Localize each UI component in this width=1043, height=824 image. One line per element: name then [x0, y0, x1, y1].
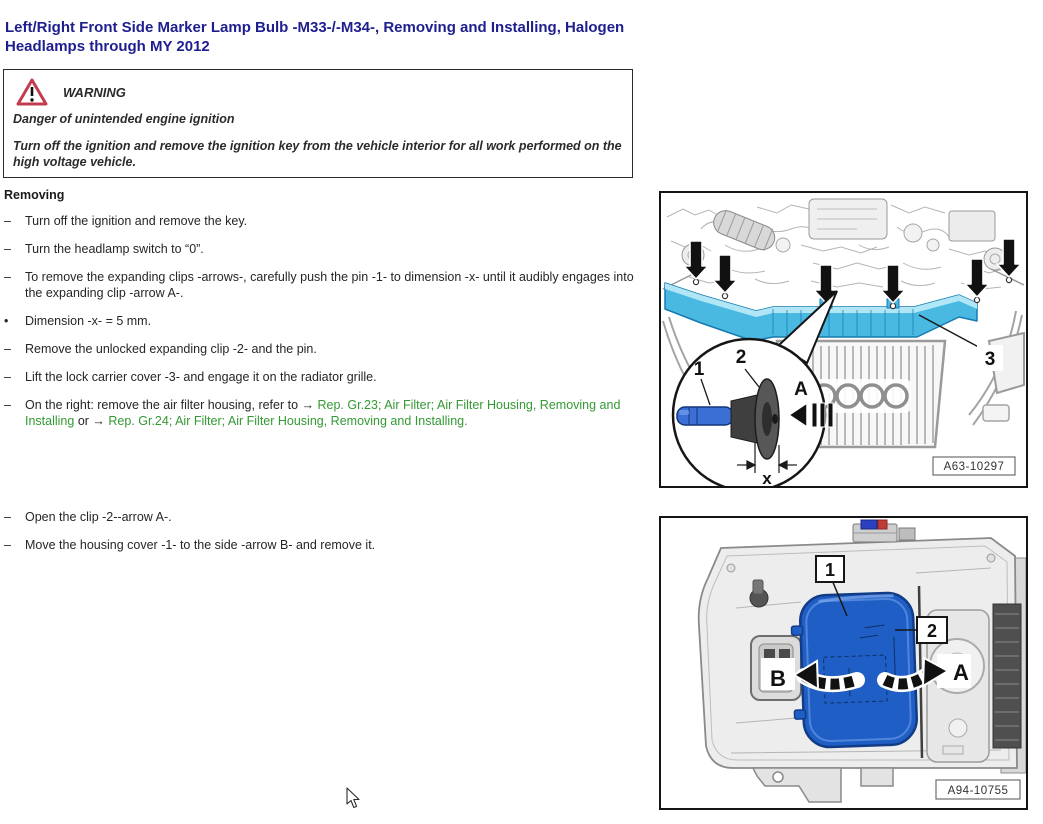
step-text: Lift the lock carrier cover -3- and enga…: [25, 369, 656, 385]
engine-bay-illustration: 3 1 2 A x A63-10297: [661, 193, 1026, 486]
step-text: Remove the unlocked expanding clip -2- a…: [25, 341, 656, 357]
service-manual-page: { "page": { "title": "Left/Right Front S…: [0, 0, 1043, 824]
step-bullet: –: [4, 241, 25, 257]
step-text: Open the clip -2--arrow A-.: [25, 509, 656, 525]
step-text: Turn the headlamp switch to “0”.: [25, 241, 656, 257]
step-bullet: –: [4, 509, 25, 525]
step-bullet: –: [4, 213, 25, 229]
figure-ref-label: A63-10297: [944, 461, 1005, 473]
blue-pin: [677, 407, 733, 425]
step-text-segment: Move the housing cover -1- to the side -…: [25, 538, 375, 552]
step-text-segment: Remove the unlocked expanding clip -2- a…: [25, 342, 317, 356]
page-title: Left/Right Front Side Marker Lamp Bulb -…: [5, 18, 653, 56]
step-text: To remove the expanding clips -arrows-, …: [25, 269, 656, 301]
removal-step: –Move the housing cover -1- to the side …: [4, 537, 656, 553]
step-bullet: –: [4, 537, 25, 553]
step-text-segment: Dimension -x- = 5 mm.: [25, 314, 151, 328]
step-bullet: –: [4, 269, 25, 301]
step-text-segment: Turn the headlamp switch to “0”.: [25, 242, 204, 256]
step-text-segment: Turn off the ignition and remove the key…: [25, 214, 247, 228]
warning-heading: WARNING: [63, 85, 126, 100]
headlamp-illustration: 1 2 B A A94-10755: [661, 518, 1026, 808]
step-text: On the right: remove the air filter hous…: [25, 397, 656, 429]
figure-headlamp-housing: 1 2 B A A94-10755: [659, 516, 1028, 810]
step-text-segment: To remove the expanding clips -arrows-, …: [25, 270, 634, 300]
warning-triangle-icon: [16, 78, 48, 107]
step-text-segment: Lift the lock carrier cover -3- and enga…: [25, 370, 377, 384]
arrow-b-label: B: [770, 666, 786, 691]
step-text: Move the housing cover -1- to the side -…: [25, 537, 656, 553]
step-text: Dimension -x- = 5 mm.: [25, 313, 656, 329]
warning-subtitle: Danger of unintended engine ignition: [13, 112, 625, 126]
removal-step: –Lift the lock carrier cover -3- and eng…: [4, 369, 656, 385]
callout-1-label: 1: [694, 359, 705, 380]
clip-collar: [731, 395, 757, 443]
mounting-bracket: [753, 768, 893, 802]
top-connector: [853, 520, 915, 542]
arrow-a-label: A: [953, 660, 969, 685]
down-arrow-icon: [881, 265, 905, 303]
callout-3-label: 3: [985, 349, 996, 370]
arrow-a-label: A: [794, 379, 808, 400]
warning-box: WARNING Danger of unintended engine igni…: [3, 69, 633, 178]
removal-step: –Turn the headlamp switch to “0”.: [4, 241, 656, 257]
removal-step: –Open the clip -2--arrow A-.: [4, 509, 656, 525]
engine-components: [663, 199, 1024, 289]
removal-step: –To remove the expanding clips -arrows-,…: [4, 269, 656, 301]
removing-steps-group-1: –Turn off the ignition and remove the ke…: [4, 213, 656, 441]
step-bullet: –: [4, 397, 25, 429]
removing-heading: Removing: [4, 188, 64, 202]
step-text-segment: On the right: remove the air filter hous…: [25, 398, 318, 412]
callout-2-label: 2: [736, 347, 747, 368]
removal-step: –Turn off the ignition and remove the ke…: [4, 213, 656, 229]
step-bullet: –: [4, 341, 25, 357]
mouse-cursor: [346, 787, 362, 809]
step-bullet: •: [4, 313, 25, 329]
removal-step: •Dimension -x- = 5 mm.: [4, 313, 656, 329]
step-text-segment: Open the clip -2--arrow A-.: [25, 510, 172, 524]
removing-steps-group-2: –Open the clip -2--arrow A-.–Move the ho…: [4, 509, 656, 565]
callout-1-label: 1: [825, 560, 835, 580]
step-text-segment: or →: [74, 414, 108, 428]
figure-lock-carrier: 3 1 2 A x A63-10297: [659, 191, 1028, 488]
callout-2-label: 2: [927, 621, 937, 641]
down-arrow-icon: [713, 255, 737, 293]
step-bullet: –: [4, 369, 25, 385]
figure-ref-label: A94-10755: [948, 785, 1009, 797]
dimension-x-label: x: [762, 469, 772, 486]
removal-step: –Remove the unlocked expanding clip -2- …: [4, 341, 656, 357]
cross-reference-link[interactable]: Rep. Gr.24; Air Filter; Air Filter Housi…: [108, 414, 467, 428]
vent-grille: [993, 604, 1021, 748]
step-text: Turn off the ignition and remove the key…: [25, 213, 656, 229]
removal-step: –On the right: remove the air filter hou…: [4, 397, 656, 429]
warning-body: Turn off the ignition and remove the ign…: [13, 138, 625, 170]
